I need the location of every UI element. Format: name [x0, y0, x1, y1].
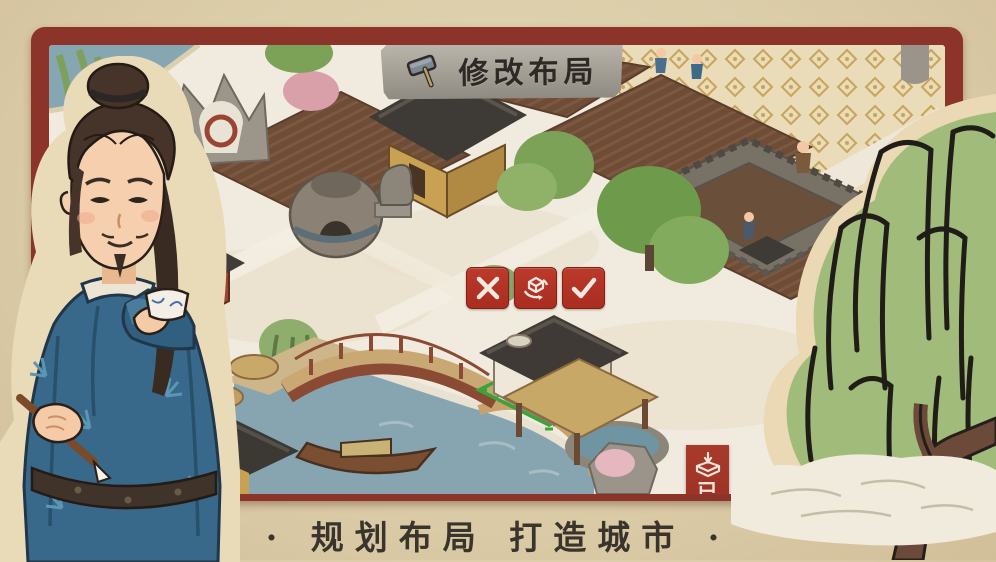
- rotate-button[interactable]: [514, 267, 557, 309]
- close-icon: [475, 275, 501, 301]
- confirm-check-icon: [570, 275, 598, 301]
- character-illustration: [0, 56, 240, 562]
- edit-mode-banner: 修改布局: [381, 45, 624, 100]
- cancel-button[interactable]: [466, 267, 509, 309]
- stored-buildings-badge[interactable]: 已: [686, 445, 729, 494]
- hammer-icon: [405, 54, 443, 88]
- willow-illustration: [731, 88, 996, 560]
- stored-buildings-box-icon: [694, 452, 722, 478]
- edit-toolbar: [466, 267, 605, 309]
- stored-badge-label: 已: [697, 482, 718, 494]
- edit-mode-title: 修改布局: [458, 47, 599, 93]
- plaza-statue: [901, 45, 929, 84]
- kiln: [290, 172, 382, 257]
- confirm-button[interactable]: [562, 267, 605, 309]
- rotate-building-icon: [521, 273, 551, 303]
- page-caption: · 规划布局 打造城市 ·: [0, 511, 996, 559]
